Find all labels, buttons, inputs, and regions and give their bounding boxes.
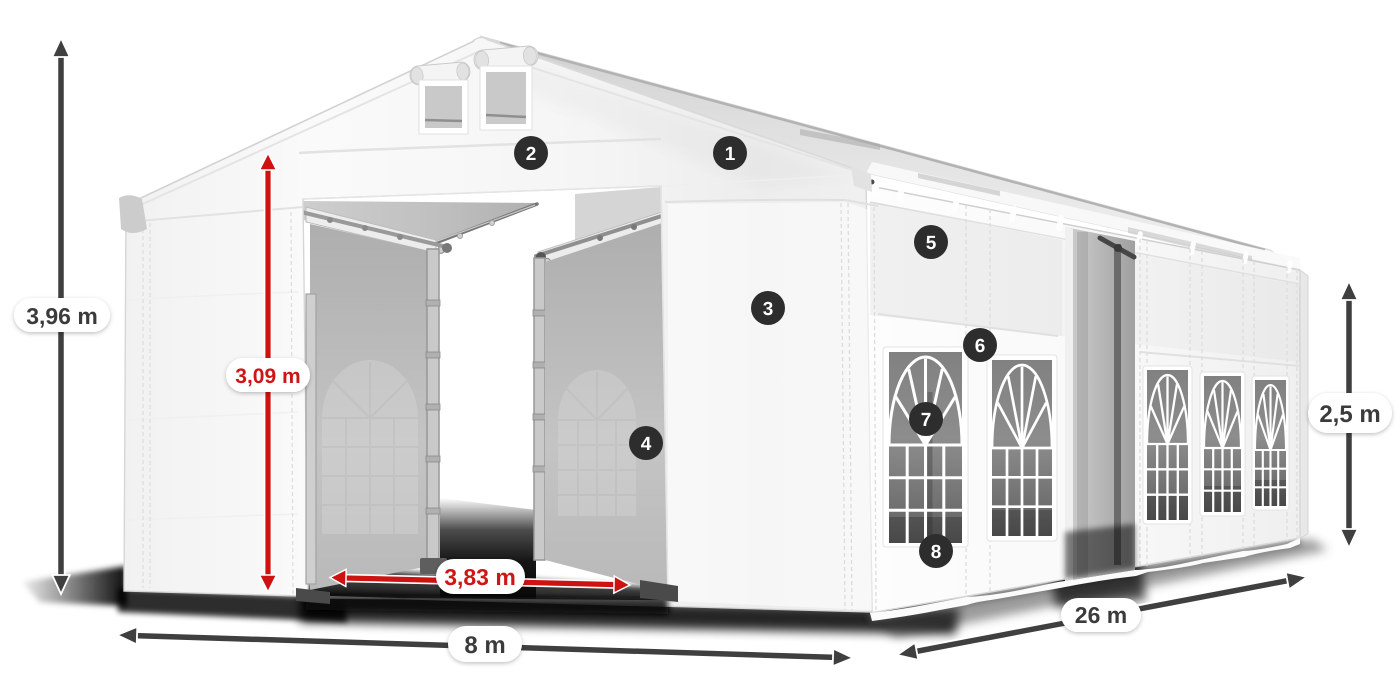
svg-text:8: 8 — [931, 542, 942, 563]
svg-text:2: 2 — [526, 144, 537, 165]
svg-text:3,96 m: 3,96 m — [26, 303, 98, 329]
svg-text:8 m: 8 m — [464, 632, 505, 659]
svg-text:3,83 m: 3,83 m — [444, 564, 516, 590]
svg-text:1: 1 — [725, 144, 736, 165]
svg-text:7: 7 — [921, 410, 932, 431]
svg-text:3,09 m: 3,09 m — [235, 365, 300, 388]
svg-text:26 m: 26 m — [1075, 602, 1127, 628]
svg-text:4: 4 — [641, 434, 652, 455]
svg-text:5: 5 — [926, 233, 937, 254]
svg-text:6: 6 — [975, 336, 986, 357]
svg-text:3: 3 — [763, 299, 774, 320]
svg-text:2,5 m: 2,5 m — [1319, 401, 1380, 428]
